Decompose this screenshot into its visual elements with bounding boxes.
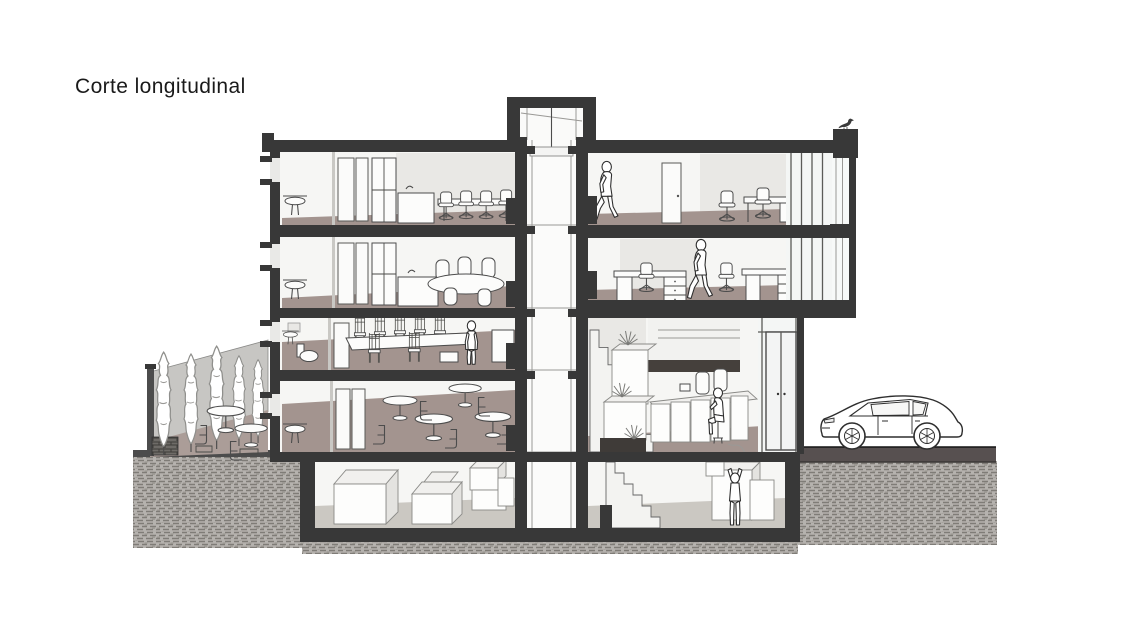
elevator-door-frame	[588, 196, 597, 224]
elevator-car	[530, 147, 573, 156]
door-handle	[677, 195, 679, 197]
interior-door	[662, 163, 681, 223]
desk-item	[680, 384, 690, 391]
entry-column	[797, 318, 804, 454]
closet-door	[356, 158, 368, 221]
shaft-wall	[576, 137, 588, 532]
car-wheel	[839, 423, 865, 449]
roof-slab-left	[262, 140, 515, 152]
floor-slab	[270, 370, 515, 381]
elevator-door-frame	[506, 343, 515, 369]
stair-base	[600, 505, 612, 528]
car	[821, 396, 962, 449]
shaft-tower-wall	[507, 97, 520, 152]
partition-wall	[332, 237, 335, 308]
roof-slab-right	[588, 140, 838, 153]
partition-wall	[330, 381, 333, 452]
elevator-door-frame	[506, 425, 515, 451]
shaft-tower-cap	[507, 97, 596, 108]
floor-slab	[270, 225, 515, 237]
interior-door	[336, 389, 350, 449]
closet-door	[356, 243, 368, 304]
elevator-door-frame	[588, 271, 597, 299]
basement-floor-slab	[300, 528, 800, 542]
earth-right	[798, 461, 997, 545]
interior-door	[338, 158, 354, 221]
partition-wall	[332, 152, 335, 225]
elevator-shaft	[520, 108, 583, 528]
street	[788, 447, 996, 462]
retaining-wall-cap	[145, 364, 156, 369]
storage-box	[334, 470, 398, 524]
interior-door	[338, 243, 354, 304]
high-chair	[714, 369, 727, 391]
earth-under-basement	[302, 542, 798, 554]
slab-edge	[830, 224, 849, 238]
longitudinal-section-drawing: Corte longitudinal	[0, 0, 1121, 631]
elevator-door-frame	[506, 281, 515, 307]
page-title: Corte longitudinal	[75, 75, 246, 98]
floor-slab	[270, 308, 515, 318]
shaft-wall	[515, 137, 527, 532]
earth-left	[133, 455, 303, 548]
cantilever-slab	[588, 300, 856, 318]
section-drawing-page: Corte longitudinal	[0, 0, 1121, 631]
car-wheel	[914, 423, 940, 449]
partition-wall	[328, 318, 331, 370]
floor-slab-right	[588, 225, 830, 238]
high-chair	[696, 372, 709, 394]
mezzanine-volume	[648, 318, 740, 362]
interior-door	[334, 323, 349, 368]
garden	[145, 340, 268, 460]
shaft-interior	[527, 140, 576, 528]
elevator-door-frame	[506, 198, 515, 224]
corner-column	[849, 148, 856, 306]
interior-door	[352, 389, 365, 449]
bench	[440, 352, 458, 362]
planter-base	[600, 438, 646, 454]
bird	[839, 119, 855, 130]
